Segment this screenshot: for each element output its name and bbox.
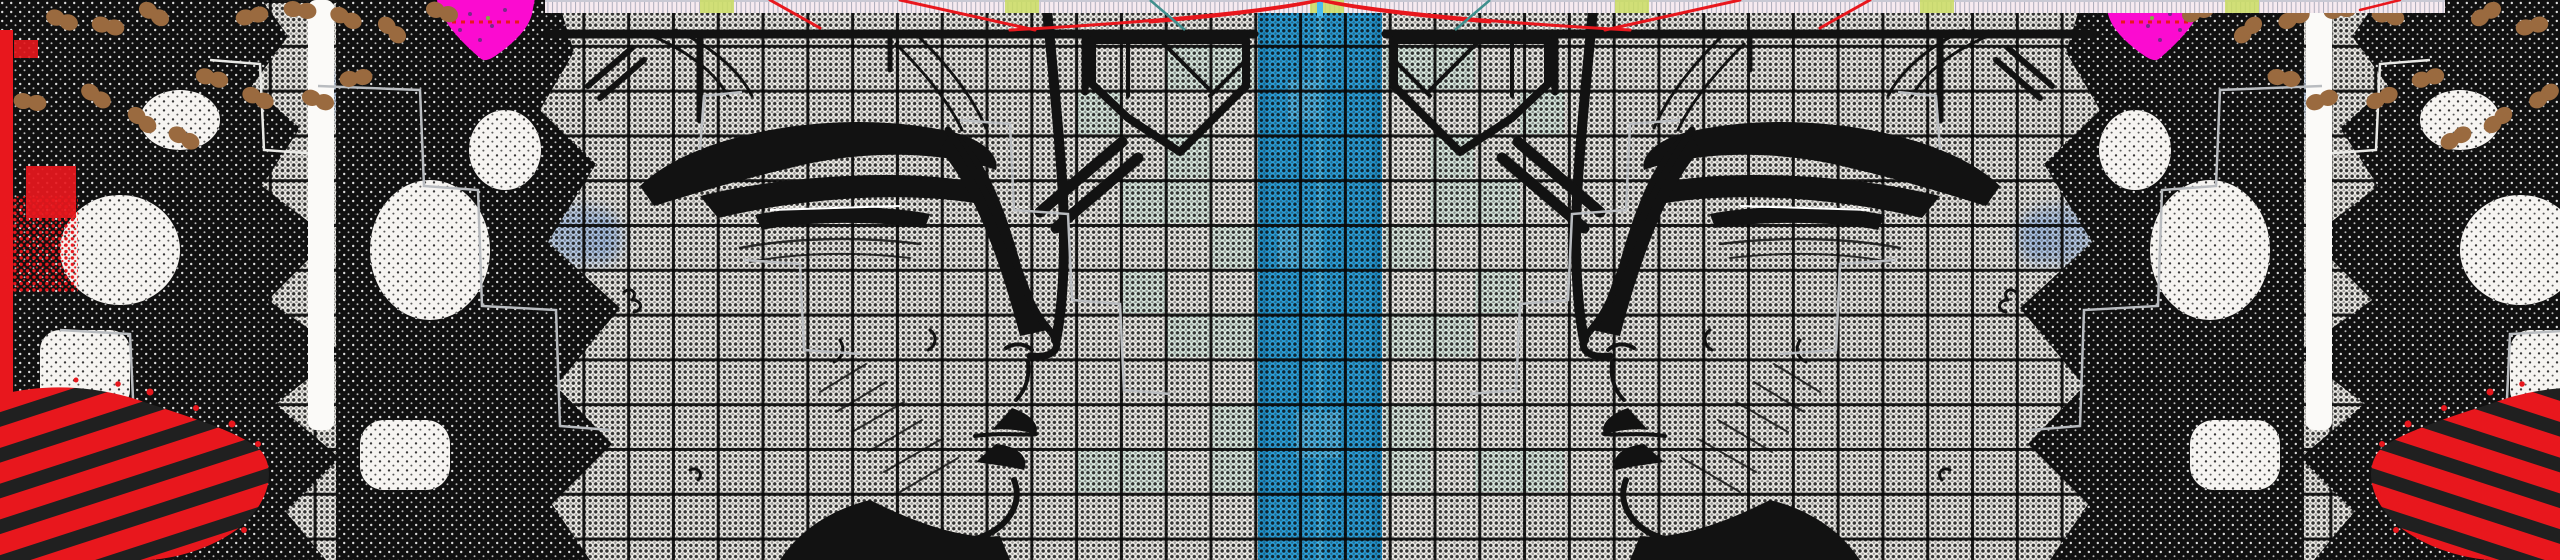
double-diagonal-strokes xyxy=(1040,142,1138,228)
ink-head-mass xyxy=(336,0,620,560)
center-axis-line-top xyxy=(1317,0,1323,16)
left-half-artwork xyxy=(0,0,1254,560)
hair-strand xyxy=(1046,0,1064,340)
red-stipple-patch xyxy=(4,196,78,292)
white-tear-band xyxy=(308,0,334,430)
glitch-collage-banner xyxy=(0,0,2560,560)
right-half-artwork-mirrored xyxy=(1386,0,2560,560)
shield-shape xyxy=(1092,40,1246,152)
ink-art-layer xyxy=(0,0,2560,560)
skin-mark-squiggles xyxy=(624,290,935,480)
cheek-hatching xyxy=(740,239,958,492)
sketch-face-profile xyxy=(624,0,1064,560)
lips xyxy=(992,408,1037,434)
jaw-shadow xyxy=(780,500,1010,560)
